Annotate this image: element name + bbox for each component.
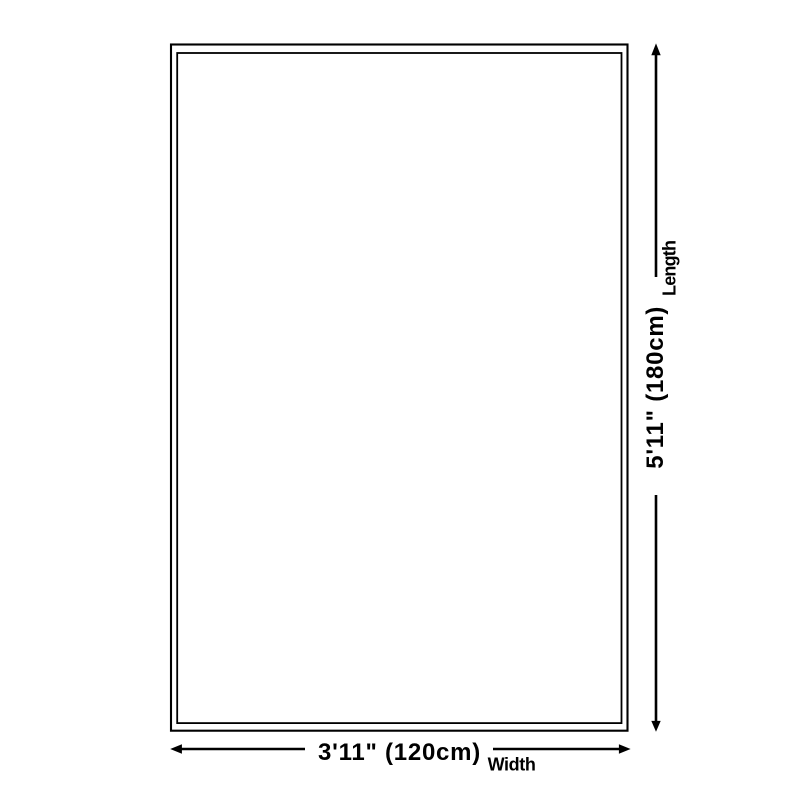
svg-text:Width: Width bbox=[488, 755, 536, 775]
svg-text:3'11" (120cm): 3'11" (120cm) bbox=[318, 739, 481, 766]
svg-text:5'11" (180cm): 5'11" (180cm) bbox=[642, 306, 669, 469]
svg-text:Length: Length bbox=[659, 241, 679, 296]
